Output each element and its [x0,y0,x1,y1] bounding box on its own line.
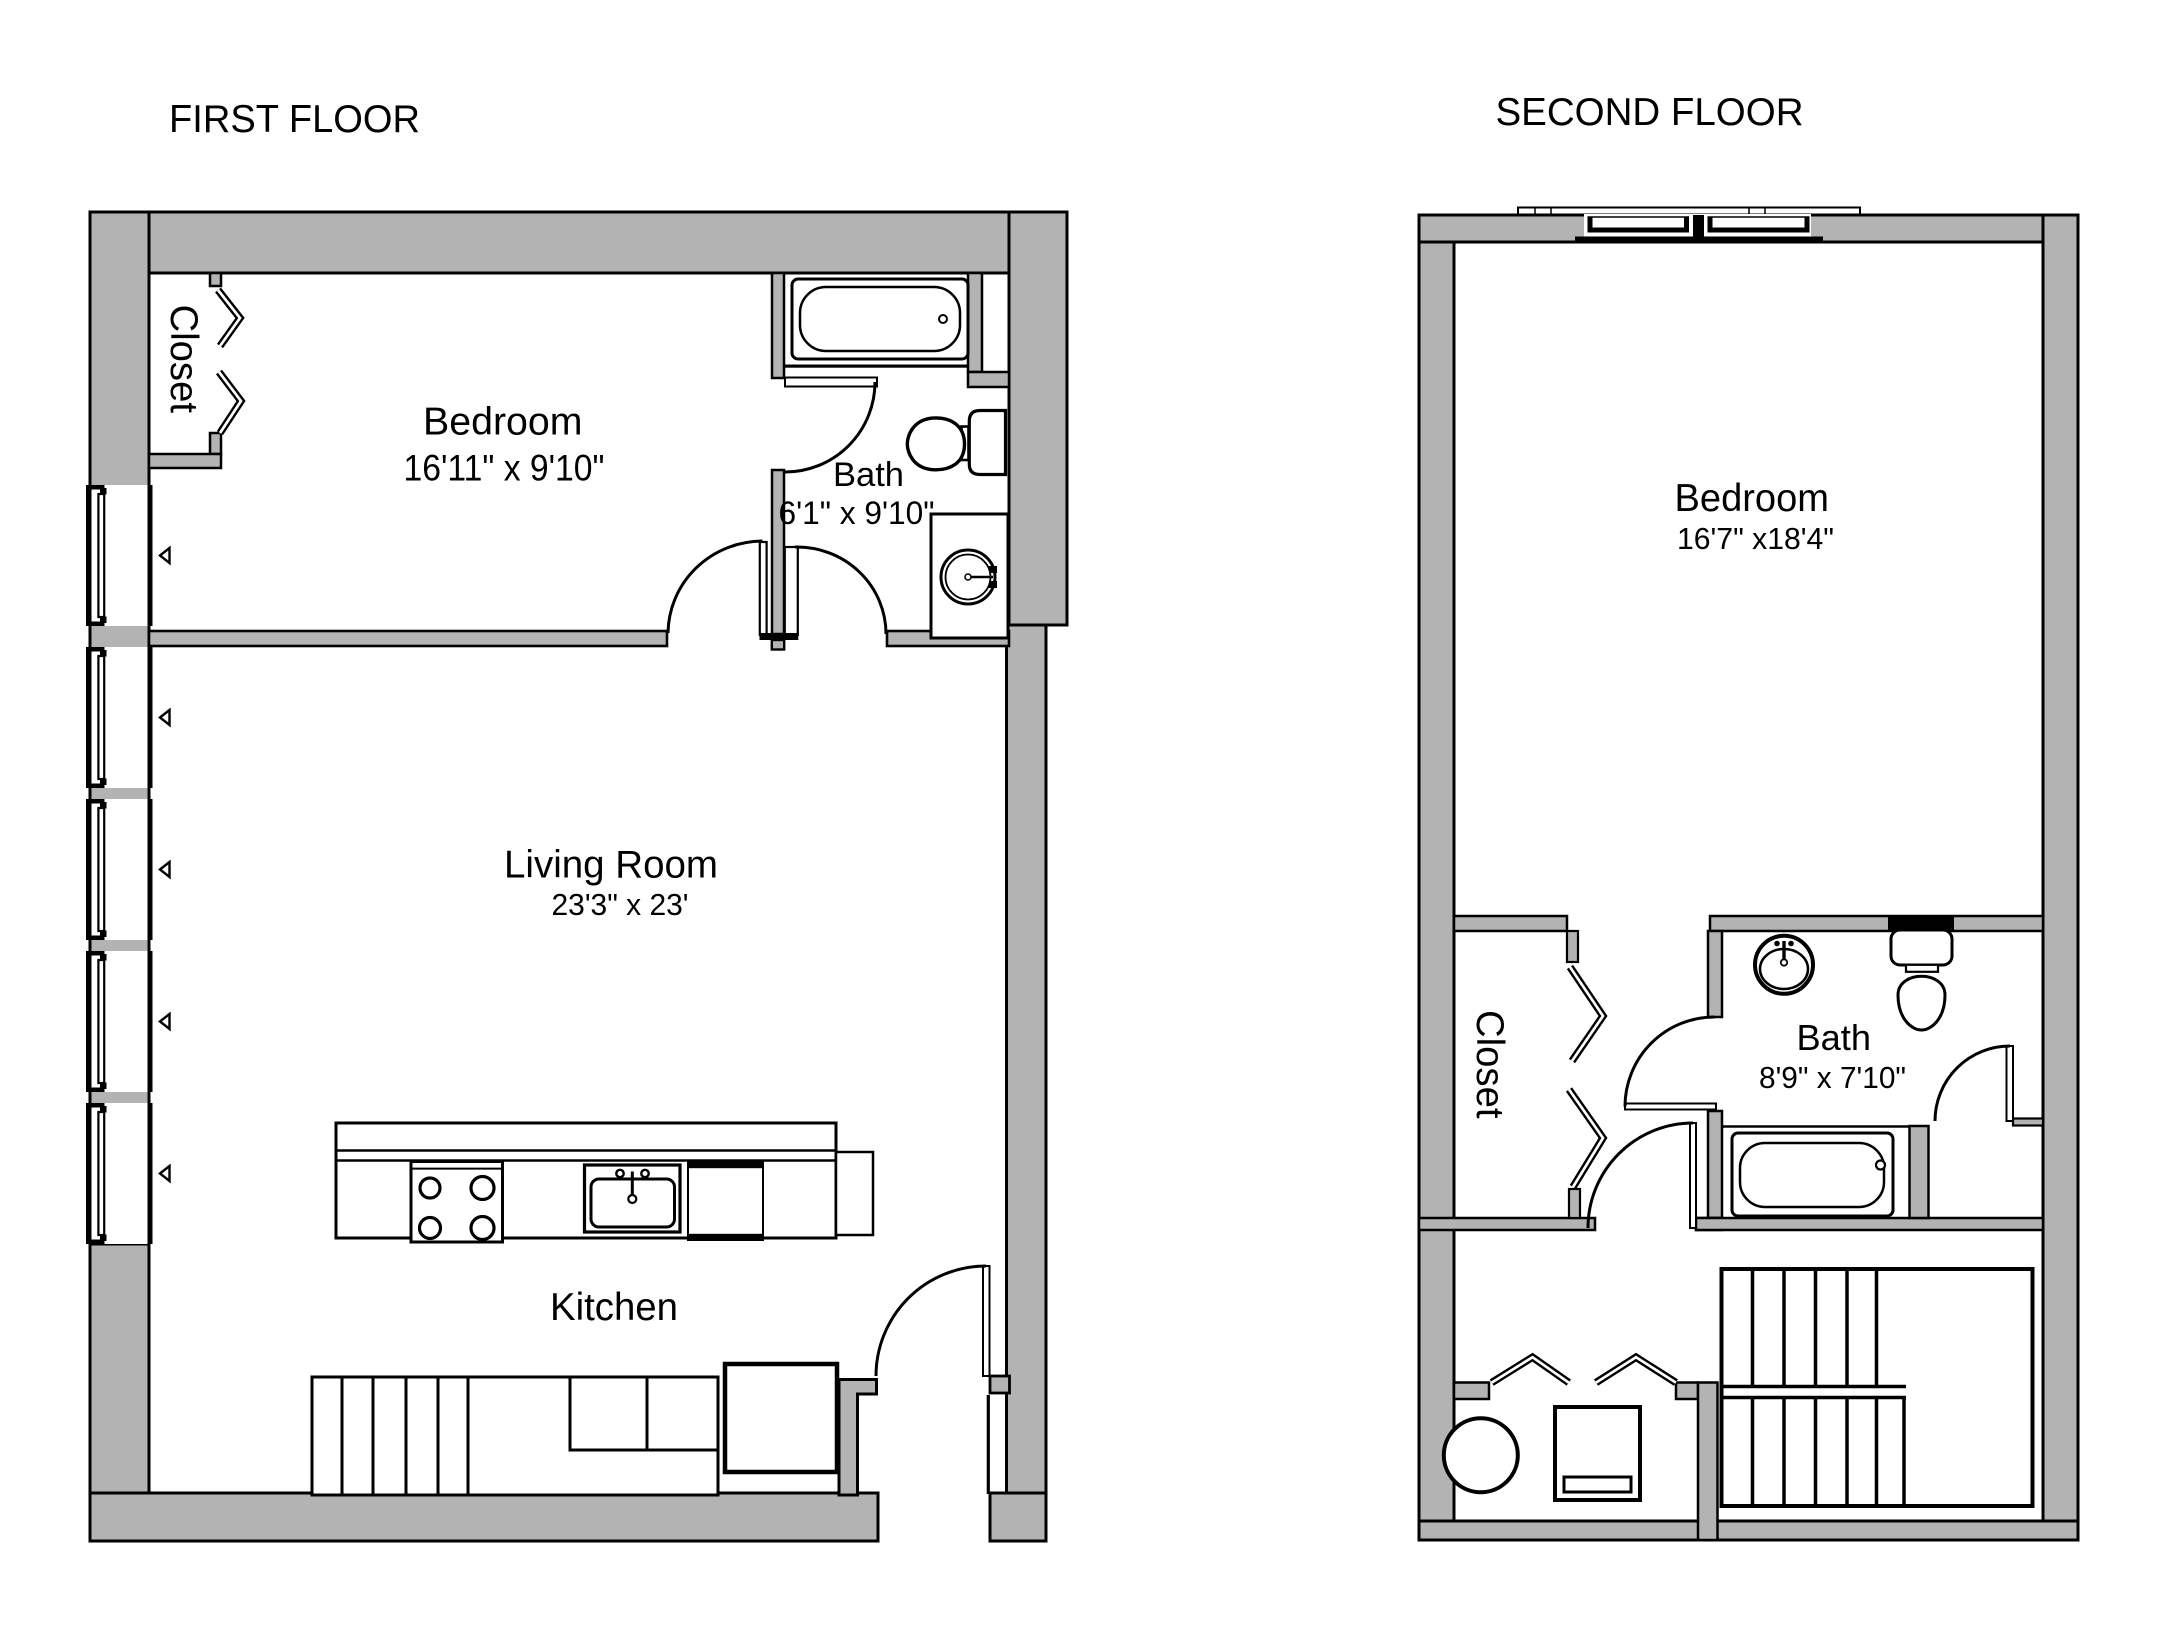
svg-text:16'7" x18'4": 16'7" x18'4" [1677,522,1834,556]
svg-text:23'3" x 23': 23'3" x 23' [552,888,689,922]
svg-text:8'9" x 7'10": 8'9" x 7'10" [1759,1061,1906,1095]
svg-text:16'11" x 9'10": 16'11" x 9'10" [404,448,605,489]
svg-text:Bath: Bath [1797,1017,1872,1058]
svg-text:SECOND FLOOR: SECOND FLOOR [1496,91,1804,134]
svg-text:Bedroom: Bedroom [423,401,583,444]
svg-text:Closet: Closet [1468,1010,1511,1119]
svg-text:Living Room: Living Room [504,844,718,887]
svg-text:6'1" x 9'10": 6'1" x 9'10" [779,495,935,531]
svg-text:FIRST FLOOR: FIRST FLOOR [169,98,420,141]
svg-text:Bath: Bath [833,456,904,494]
svg-text:Kitchen: Kitchen [550,1286,678,1329]
svg-text:Bedroom: Bedroom [1675,477,1830,520]
svg-text:Closet: Closet [162,305,205,414]
